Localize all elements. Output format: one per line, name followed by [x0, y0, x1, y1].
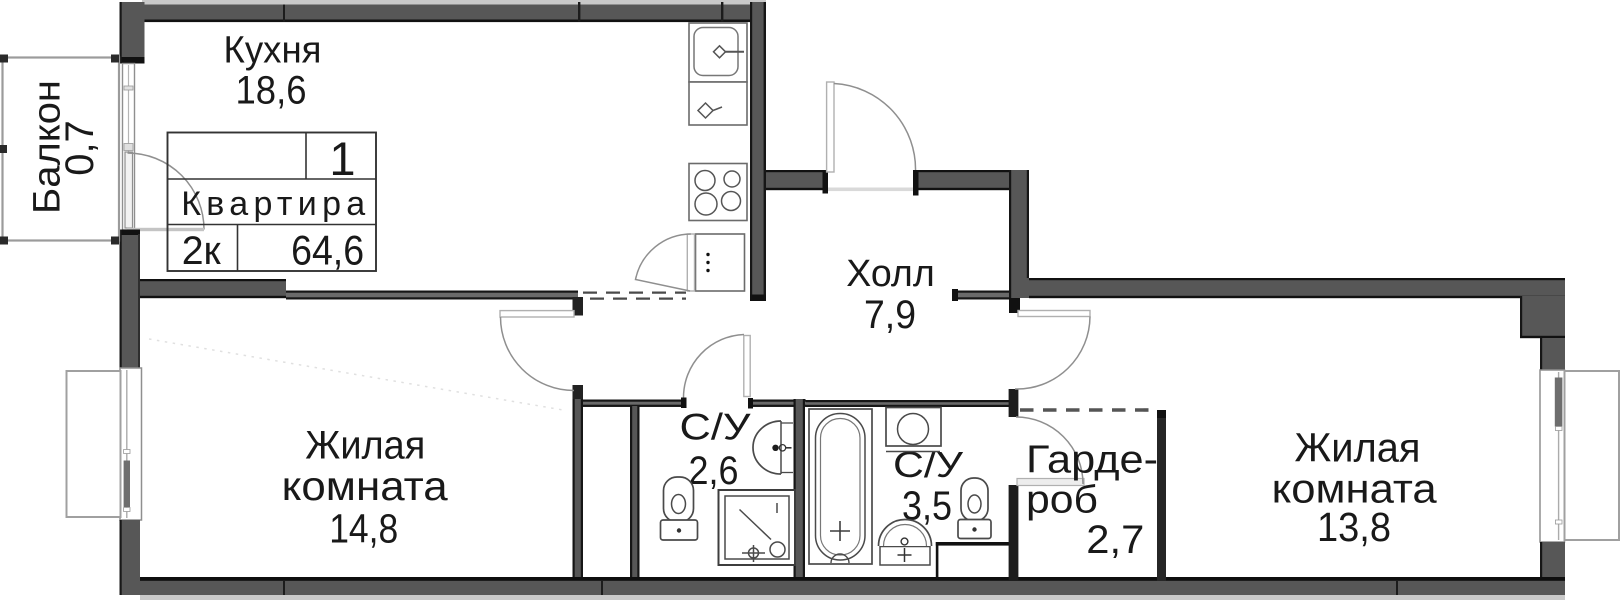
svg-text:Жилая: Жилая	[305, 424, 425, 468]
svg-text:С/У: С/У	[893, 444, 964, 485]
svg-text:2,7: 2,7	[1086, 518, 1144, 562]
svg-text:Кухня: Кухня	[224, 30, 322, 72]
svg-text:2к: 2к	[182, 229, 221, 273]
svg-text:комната: комната	[282, 463, 448, 509]
svg-text:64,6: 64,6	[291, 226, 364, 273]
svg-text:2,6: 2,6	[689, 449, 739, 493]
svg-text:7,9: 7,9	[864, 293, 916, 337]
svg-text:Холл: Холл	[846, 253, 935, 295]
svg-text:Жилая: Жилая	[1295, 425, 1421, 471]
svg-text:Гарде-: Гарде-	[1026, 438, 1158, 481]
svg-text:14,8: 14,8	[329, 506, 398, 552]
svg-text:роб: роб	[1026, 479, 1098, 522]
svg-text:С/У: С/У	[680, 407, 752, 448]
svg-text:1: 1	[329, 132, 355, 185]
svg-text:0,7: 0,7	[58, 120, 102, 176]
svg-text:13,8: 13,8	[1317, 504, 1391, 550]
svg-text:18,6: 18,6	[236, 69, 307, 113]
